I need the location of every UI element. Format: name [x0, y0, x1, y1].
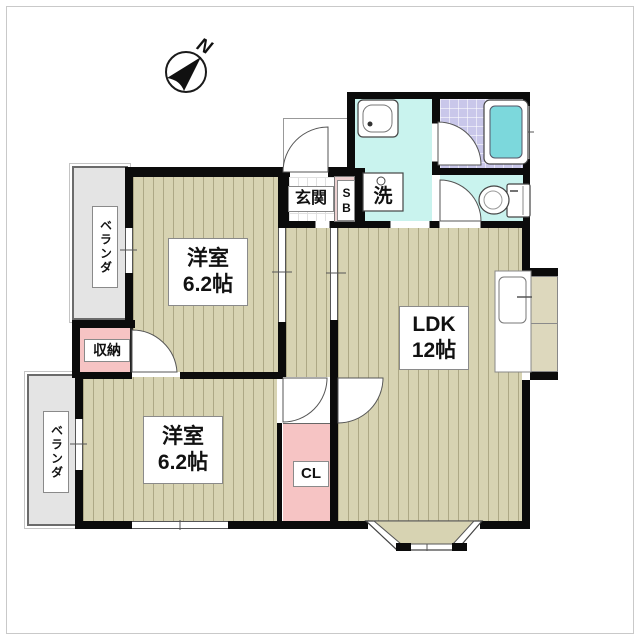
bedroom2-label: 洋室 6.2帖 [143, 416, 223, 484]
wall-segment [125, 167, 290, 177]
wall-segment [355, 168, 365, 228]
window-bath [523, 106, 530, 159]
sliding-door-ldk [330, 228, 338, 320]
wall-segment [125, 273, 133, 322]
wall-segment [347, 99, 355, 177]
wall-segment [530, 268, 558, 276]
back-porch [530, 276, 558, 372]
wall-segment [523, 159, 530, 228]
window-bedroom1-balcony [125, 228, 133, 273]
floor-plan: N 洋室 6.2帖 洋室 6.2帖 LDK 12帖 玄関 SB 洗 収納 CL … [0, 0, 640, 640]
wall-segment [78, 372, 132, 379]
floor-toilet [440, 175, 523, 221]
wall-segment [277, 423, 282, 521]
wall-segment [130, 328, 133, 372]
floor-ldk [338, 228, 522, 521]
floor-hallway [286, 228, 330, 378]
wall-segment [228, 521, 368, 529]
wall-segment [522, 380, 530, 529]
wall-segment [72, 328, 80, 378]
wall-segment [432, 168, 530, 175]
bedroom2-name: 洋室 [162, 424, 204, 450]
storage-label: 収納 [84, 339, 130, 362]
opening-entrance-hall [315, 221, 330, 228]
wall-segment [180, 372, 283, 379]
wall-segment [480, 521, 522, 529]
wall-segment [281, 221, 315, 228]
porch-step-line [530, 323, 558, 324]
wall-segment [278, 322, 286, 377]
ldk-label: LDK 12帖 [399, 306, 469, 370]
wall-segment [522, 228, 530, 272]
floor-bathroom [440, 99, 523, 168]
bedroom2-size: 6.2帖 [158, 450, 208, 476]
bedroom1-size: 6.2帖 [183, 272, 233, 298]
balcony-top-label: ベランダ [92, 206, 118, 288]
wall-segment [330, 377, 338, 523]
wall-segment [432, 99, 440, 123]
opening-bath-door [432, 123, 440, 162]
wall-segment [330, 320, 338, 377]
ldk-name: LDK [412, 312, 455, 338]
bedroom1-name: 洋室 [187, 246, 229, 272]
washer-label: 洗 [368, 184, 398, 209]
shoe-box-label: SB [337, 180, 355, 221]
wall-segment [430, 221, 439, 228]
wall-segment [75, 372, 83, 419]
entrance-label: 玄関 [288, 186, 334, 212]
bedroom1-label: 洋室 6.2帖 [168, 238, 248, 306]
window-bedroom2-south [132, 521, 228, 529]
opening-washroom-door [390, 221, 430, 228]
wall-segment [480, 221, 530, 228]
window-bedroom2-balcony [75, 419, 83, 470]
sliding-door-bedroom1 [278, 228, 286, 322]
ldk-size: 12帖 [412, 338, 456, 364]
wall-segment [530, 372, 558, 380]
wall-segment [523, 92, 530, 106]
wall-segment [347, 92, 530, 99]
wall-segment [75, 521, 132, 529]
wall-segment [75, 470, 83, 529]
opening-toilet-door [439, 221, 481, 228]
floor-door-nook [283, 377, 330, 423]
balcony-bottom-label: ベランダ [43, 411, 69, 493]
wall-segment [125, 177, 133, 228]
wall-segment [72, 320, 135, 328]
entry-porch [283, 118, 348, 173]
closet-label: CL [293, 461, 329, 487]
